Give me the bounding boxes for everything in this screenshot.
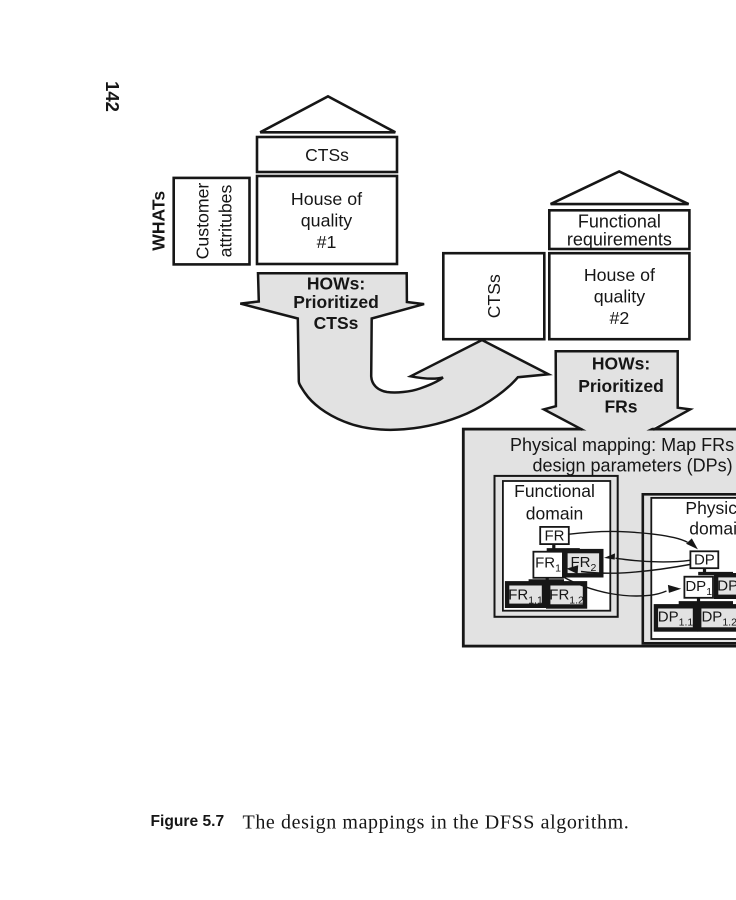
svg-text:CTSs: CTSs bbox=[314, 313, 359, 333]
svg-text:DP: DP bbox=[694, 552, 715, 569]
svg-text:design parameters (DPs): design parameters (DPs) bbox=[533, 456, 733, 476]
svg-text:domain: domain bbox=[689, 519, 736, 539]
svg-text:The design mappings in the DFS: The design mappings in the DFSS algorith… bbox=[243, 812, 630, 834]
svg-text:Prioritized: Prioritized bbox=[578, 376, 664, 396]
svg-text:142: 142 bbox=[102, 81, 123, 112]
svg-text:FR: FR bbox=[545, 528, 565, 545]
svg-text:FRs: FRs bbox=[604, 396, 637, 416]
svg-text:quality: quality bbox=[594, 287, 646, 307]
svg-text:Physical: Physical bbox=[685, 498, 736, 518]
svg-text:domain: domain bbox=[526, 504, 583, 524]
svg-text:WHATs: WHATs bbox=[149, 191, 169, 251]
svg-text:requirements: requirements bbox=[567, 229, 672, 249]
svg-text:Prioritized: Prioritized bbox=[293, 292, 379, 312]
svg-text:House of: House of bbox=[584, 265, 655, 285]
svg-text:attritubes: attritubes bbox=[216, 184, 236, 257]
svg-text:House of: House of bbox=[291, 189, 362, 209]
svg-text:Physical mapping: Map FRs: Physical mapping: Map FRs bbox=[510, 435, 734, 455]
svg-text:CTSs: CTSs bbox=[484, 274, 504, 318]
svg-text:Figure 5.7: Figure 5.7 bbox=[151, 813, 225, 830]
svg-text:HOWs:: HOWs: bbox=[592, 354, 650, 374]
svg-text:HOWs:: HOWs: bbox=[307, 274, 365, 294]
svg-text:#1: #1 bbox=[317, 232, 337, 252]
svg-text:#2: #2 bbox=[610, 308, 630, 328]
svg-text:Customer: Customer bbox=[193, 183, 213, 260]
svg-text:Functional: Functional bbox=[578, 211, 661, 231]
svg-text:quality: quality bbox=[301, 211, 353, 231]
svg-text:Functional: Functional bbox=[514, 481, 595, 501]
svg-text:CTSs: CTSs bbox=[305, 145, 349, 165]
